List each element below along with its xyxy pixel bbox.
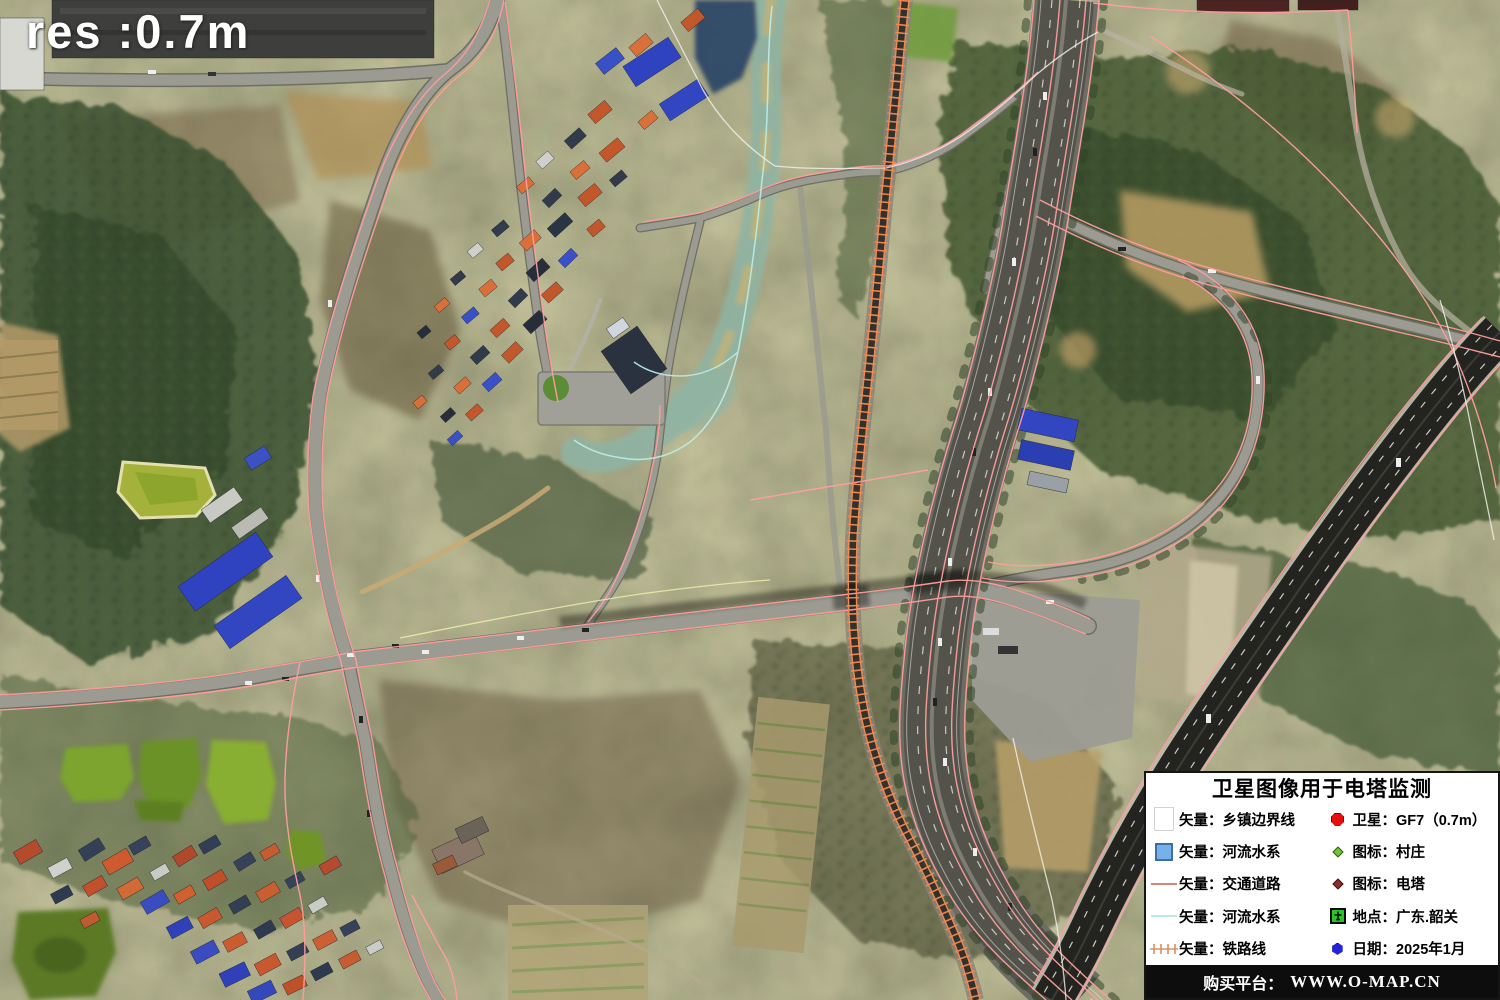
legend-left-column: 矢量：乡镇边界线 矢量：河流水系 矢量：交通道路 矢量：河流水系 矢量：铁路线 (1149, 803, 1323, 965)
legend-item-road: 矢量：交通道路 (1149, 870, 1323, 897)
township-boundary-swatch (1149, 807, 1179, 831)
satellite-map-viewport[interactable]: res :0.7m 卫星图像用于电塔监测 矢量：乡镇边界线 矢量：河流水系 矢量… (0, 0, 1500, 1000)
date-dot-icon (1323, 943, 1353, 955)
legend-item-river-line: 矢量：河流水系 (1149, 903, 1323, 930)
legend-footer: 购买平台： WWW.O-MAP.CN (1146, 965, 1498, 998)
legend-item-boundary: 矢量：乡镇边界线 (1149, 806, 1323, 833)
railway-line-swatch (1149, 943, 1179, 955)
legend-item-river-polygon: 矢量：河流水系 (1149, 838, 1323, 865)
legend-item-railway: 矢量：铁路线 (1149, 935, 1323, 962)
legend-right-column: 卫星：GF7（0.7m） 图标：村庄 图标：电塔 地点：广东.韶关 日期：202… (1323, 803, 1497, 965)
satellite-dot-icon (1323, 813, 1353, 826)
traffic-road-swatch (1149, 883, 1179, 885)
river-line-swatch (1149, 915, 1179, 917)
village-diamond-icon (1323, 848, 1353, 856)
purchase-platform-url: WWW.O-MAP.CN (1290, 972, 1441, 992)
purchase-platform-label: 购买平台： (1203, 970, 1283, 994)
legend-panel: 卫星图像用于电塔监测 矢量：乡镇边界线 矢量：河流水系 矢量：交通道路 矢量：河… (1144, 771, 1500, 1000)
tower-diamond-icon (1323, 880, 1353, 888)
legend-title: 卫星图像用于电塔监测 (1146, 773, 1498, 803)
legend-item-satellite: 卫星：GF7（0.7m） (1323, 806, 1497, 833)
location-icon (1323, 908, 1353, 924)
resolution-label: res :0.7m (26, 4, 250, 59)
legend-item-village: 图标：村庄 (1323, 838, 1497, 865)
legend-item-tower: 图标：电塔 (1323, 870, 1497, 897)
river-polygon-swatch (1149, 843, 1179, 861)
legend-item-date: 日期：2025年1月 (1323, 935, 1497, 962)
legend-item-location: 地点：广东.韶关 (1323, 903, 1497, 930)
